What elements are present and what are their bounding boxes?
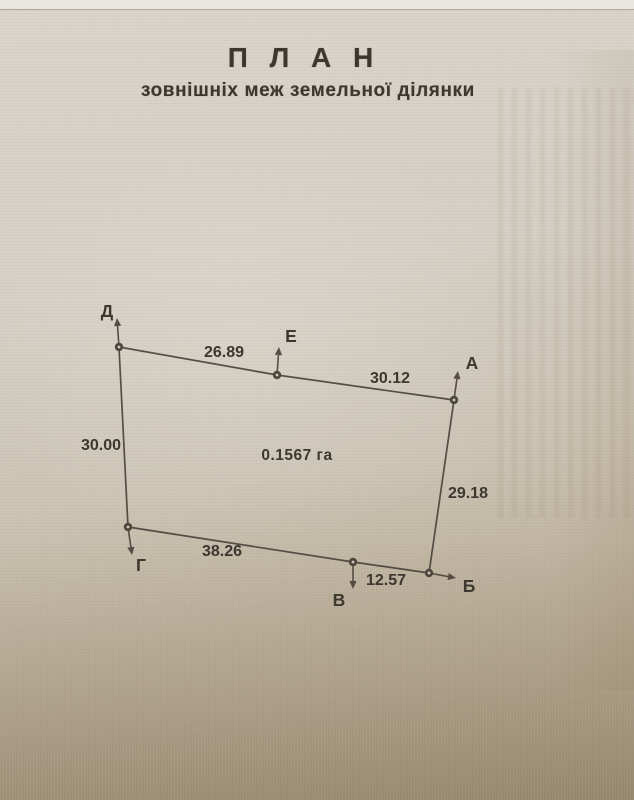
direction-arrow-head <box>447 573 456 580</box>
direction-arrow-head <box>275 347 282 355</box>
vertex-dot-center <box>453 399 456 402</box>
vertex-dot-center <box>428 572 431 575</box>
parcel-plan-drawing: 26.8930.1229.1812.5738.2630.00ДЕАБВГ0.15… <box>0 0 634 800</box>
direction-arrow-head <box>349 581 356 589</box>
edge-length-label: 29.18 <box>448 485 488 502</box>
direction-arrow-head <box>127 547 134 555</box>
direction-arrow-head <box>453 371 460 379</box>
vertex-label: Д <box>101 301 114 321</box>
edge-length-label: 38.26 <box>202 543 242 560</box>
direction-arrow-head <box>114 318 121 326</box>
edge-length-label: 12.57 <box>366 572 406 589</box>
vertex-dot-center <box>276 374 279 377</box>
vertex-label: В <box>333 590 346 610</box>
vertex-dot-center <box>127 526 130 529</box>
edge-length-label: 30.12 <box>370 370 410 387</box>
vertex-label: Б <box>463 576 476 596</box>
vertex-label: Г <box>136 555 146 575</box>
scanned-land-plan-page: П Л А Н зовнішніх меж земельної ділянки … <box>0 0 634 800</box>
vertex-dot-center <box>352 561 355 564</box>
edge-length-label: 30.00 <box>81 437 121 454</box>
vertex-label: Е <box>285 326 297 346</box>
area-label: 0.1567 га <box>261 447 332 464</box>
vertex-dot-center <box>118 346 121 349</box>
edge-length-label: 26.89 <box>204 344 244 361</box>
vertex-label: А <box>466 353 479 373</box>
